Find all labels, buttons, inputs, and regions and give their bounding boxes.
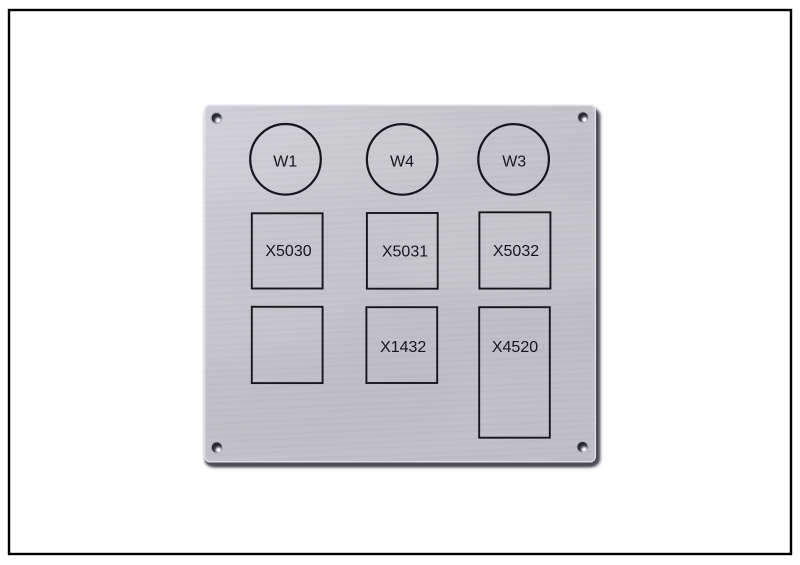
svg-text:W3: W3 <box>502 154 526 171</box>
svg-text:X5030: X5030 <box>265 243 311 260</box>
svg-text:W4: W4 <box>390 154 414 171</box>
svg-text:X5031: X5031 <box>382 243 428 260</box>
svg-text:X4520: X4520 <box>492 339 538 356</box>
svg-text:W1: W1 <box>273 154 297 171</box>
svg-text:X5032: X5032 <box>493 243 539 260</box>
svg-text:X1432: X1432 <box>380 339 426 356</box>
